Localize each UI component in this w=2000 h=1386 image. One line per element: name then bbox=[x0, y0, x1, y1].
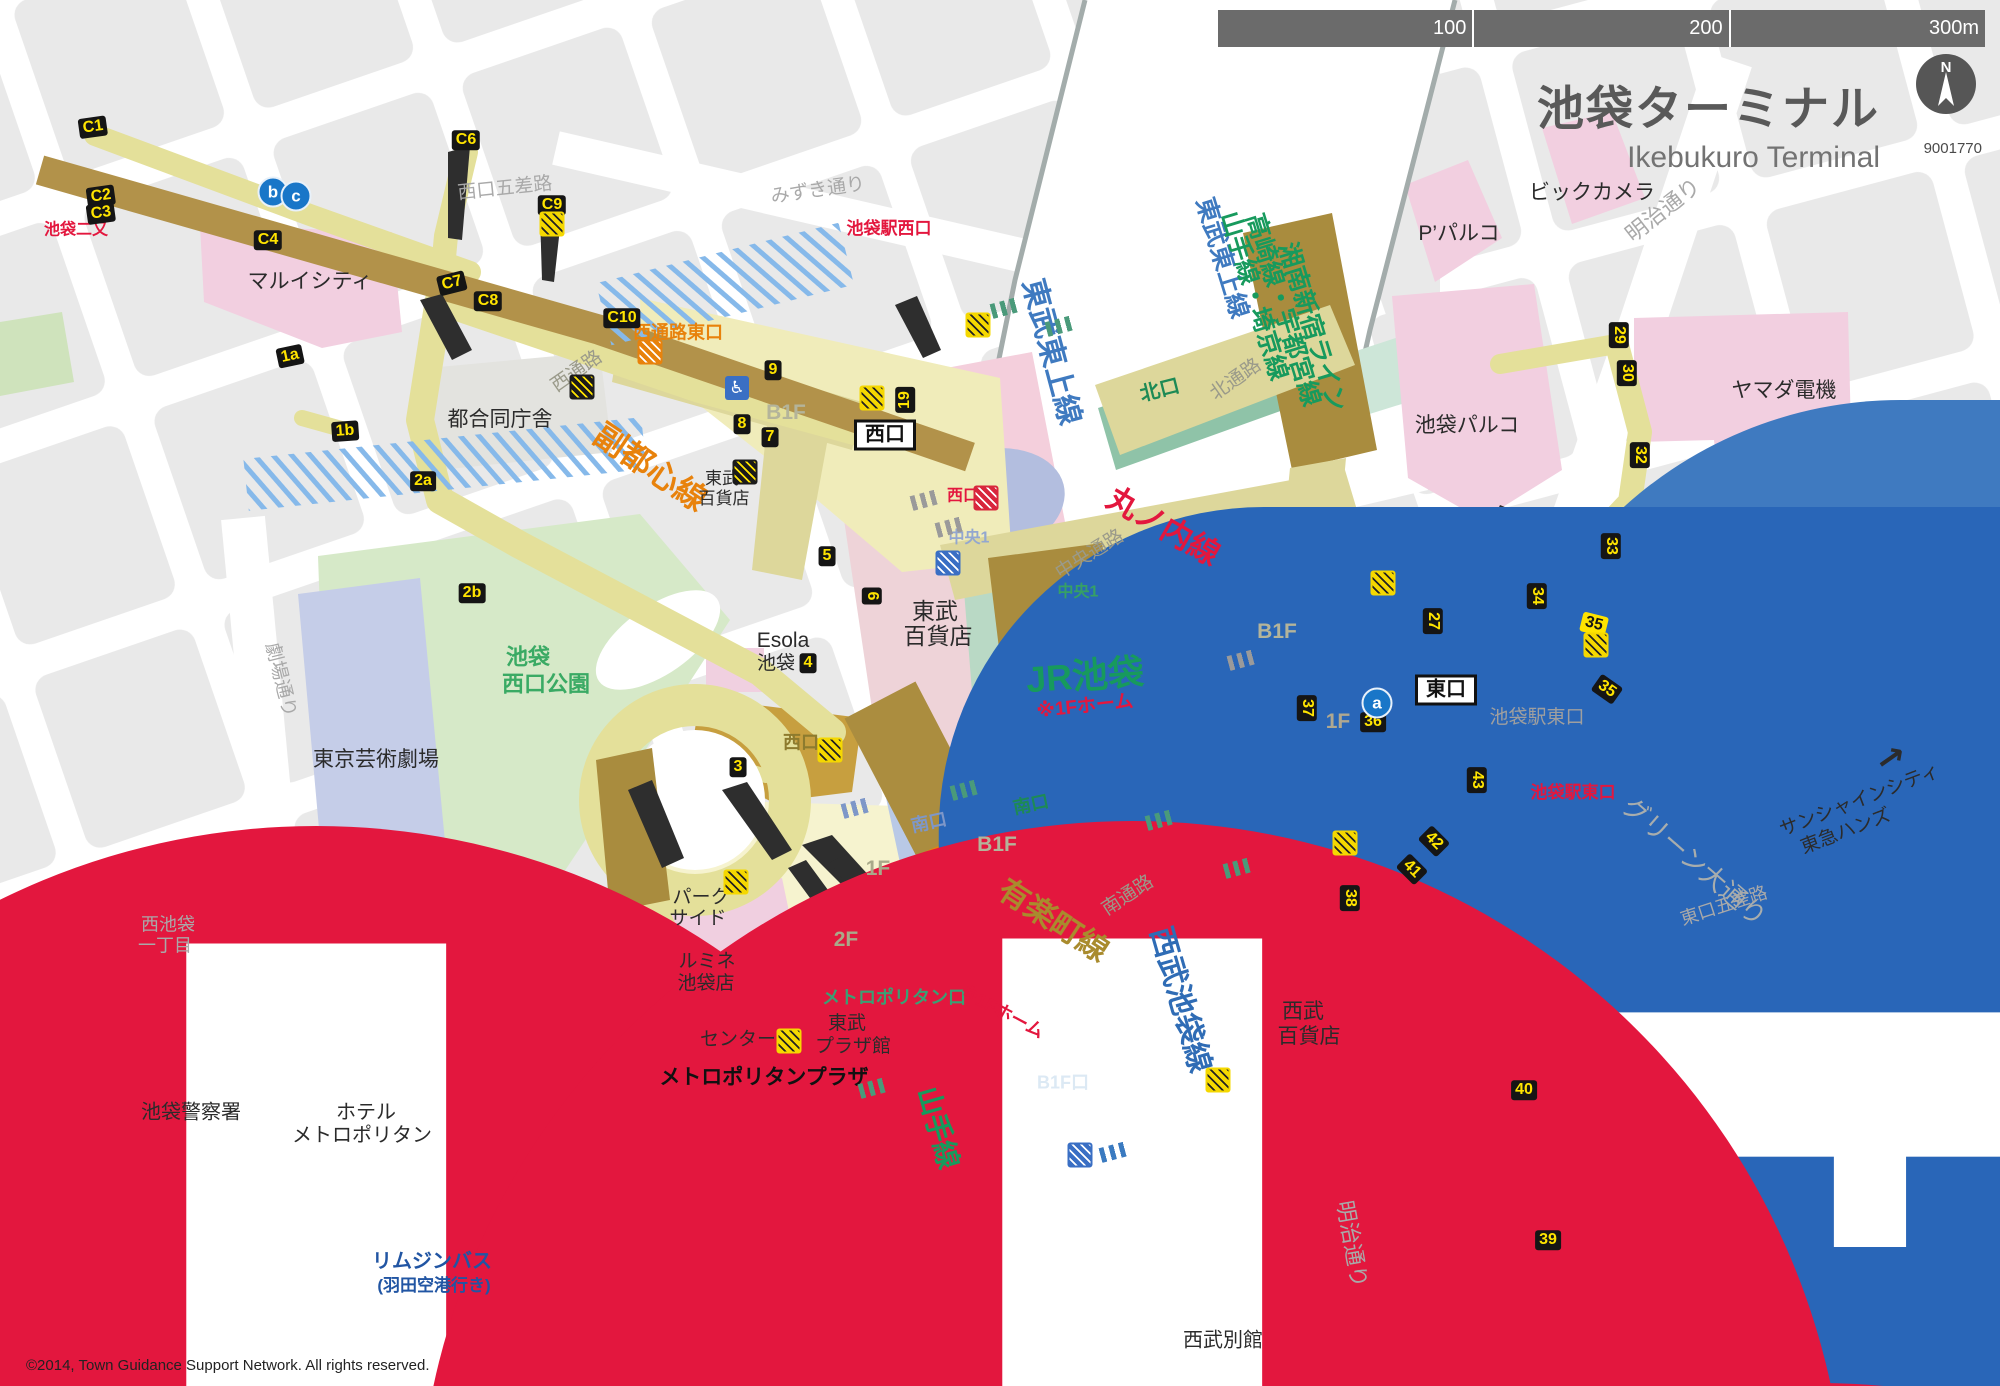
map-label: みずき通り bbox=[770, 175, 867, 208]
escalator-icon bbox=[818, 738, 843, 763]
map-label: 1F bbox=[1326, 711, 1351, 733]
map-label: 北通路 bbox=[1207, 355, 1265, 404]
crosswalk-marks bbox=[1099, 1141, 1130, 1163]
escalator-icon bbox=[1371, 571, 1396, 596]
bus-stop-badge-35: 35 bbox=[1591, 674, 1623, 705]
map-label: 池袋パルコ bbox=[1415, 415, 1520, 437]
escalator-icon bbox=[1584, 633, 1609, 658]
scale-segment-100: 100 bbox=[1218, 10, 1474, 47]
bus-stop-badge-C7: C7 bbox=[436, 270, 468, 296]
map-label: 北口 bbox=[1138, 376, 1182, 406]
map-label: 2F bbox=[834, 929, 859, 951]
bus-stop-badge-27: 27 bbox=[1423, 608, 1443, 634]
scale-bar: 100 200 300m bbox=[1218, 10, 1985, 47]
map-label: 西口公園 bbox=[502, 672, 590, 695]
map-label: 東武東上線 bbox=[1016, 275, 1085, 428]
map-label: ↗ bbox=[1873, 740, 1907, 780]
map-label: マルイシティ bbox=[248, 271, 373, 293]
bus-stop-badge-30: 30 bbox=[1617, 360, 1637, 386]
escalator-icon bbox=[777, 1029, 802, 1054]
map-label: B1F bbox=[1257, 621, 1297, 643]
escalator-icon bbox=[860, 386, 885, 411]
map-label: 池袋駅東口 bbox=[1489, 708, 1584, 728]
map-label: 南通路 bbox=[1099, 872, 1158, 920]
map-label: 池袋駅西口 bbox=[847, 220, 932, 238]
bus-stop-badge-33: 33 bbox=[1601, 533, 1621, 559]
bus-stop-badge-41: 41 bbox=[1396, 853, 1428, 885]
bus-stop-badge-9: 9 bbox=[765, 360, 782, 380]
scale-segment-200: 200 bbox=[1474, 10, 1730, 47]
map-label: 1F bbox=[866, 858, 891, 880]
map-label: 百貨店 bbox=[904, 624, 973, 648]
map-label: 劇場通り bbox=[261, 641, 299, 720]
map-label: 西武別館 bbox=[1183, 1331, 1263, 1352]
crosswalk-marks bbox=[1145, 809, 1176, 831]
bus-stop-badge-4: 4 bbox=[800, 653, 817, 673]
page-title: 池袋ターミナル bbox=[1537, 70, 1880, 139]
bus-stop-badge-7: 7 bbox=[762, 427, 779, 447]
bus-stop-badge-C3: C3 bbox=[86, 201, 117, 224]
scale-segment-300: 300m bbox=[1731, 10, 1985, 47]
map-label: 西武池袋線 bbox=[1144, 924, 1216, 1077]
map-label: 池袋 bbox=[757, 654, 795, 674]
bus-stop-badge-6: 6 bbox=[862, 588, 882, 605]
bus-stop-badge-37: 37 bbox=[1297, 695, 1317, 721]
bus-stop-badge-C6: C6 bbox=[452, 130, 480, 150]
map-label: ビックカメラ bbox=[1529, 182, 1655, 204]
bus-stop-badge-1a: 1a bbox=[275, 344, 304, 369]
bus-stop-badge-42: 42 bbox=[1418, 825, 1450, 857]
escalator-icon bbox=[966, 313, 991, 338]
crosswalk-marks bbox=[990, 297, 1021, 319]
map-label: 一丁目 bbox=[138, 937, 192, 956]
map-label: 西池袋 bbox=[141, 916, 195, 935]
compass-icon: N bbox=[1914, 52, 1978, 116]
bus-stop-badge-C4: C4 bbox=[254, 230, 282, 250]
map-label: 東武 bbox=[912, 599, 958, 623]
page-title-en: Ikebukuro Terminal bbox=[1537, 141, 1880, 175]
map-label: P’パルコ bbox=[1418, 223, 1499, 245]
map-label: 南口 bbox=[909, 810, 948, 836]
map-label: 有楽町線 bbox=[992, 874, 1114, 969]
crosswalk-marks bbox=[1227, 649, 1258, 671]
map-label: 西口 bbox=[783, 734, 819, 753]
bus-stop-badge-34: 34 bbox=[1527, 583, 1547, 609]
bus-stop-badge-C1: C1 bbox=[78, 115, 109, 138]
copyright-notice: ©2014, Town Guidance Support Network. Al… bbox=[26, 1357, 429, 1374]
map-label: ルミネ bbox=[678, 952, 735, 972]
map-label: B1F口 bbox=[1037, 1074, 1089, 1093]
map-label: ※1Fホーム bbox=[957, 982, 1047, 1042]
crosswalk-marks bbox=[910, 489, 941, 511]
map-label: 丸ノ内線 bbox=[1101, 482, 1225, 572]
map-label: プラザ館 bbox=[815, 1037, 891, 1057]
crosswalk-marks bbox=[1223, 857, 1254, 879]
map-label: B1F bbox=[977, 834, 1017, 856]
map-label: メトロポリタンプラザ bbox=[659, 1067, 868, 1089]
bus-stop-badge-8: 8 bbox=[734, 414, 751, 434]
map-label: センター bbox=[700, 1030, 776, 1050]
bus-stop-badge-C8: C8 bbox=[474, 291, 502, 311]
map-label: 都合同庁舎 bbox=[448, 409, 553, 431]
map-label: 東武 bbox=[828, 1014, 866, 1034]
map-label: 池袋店 bbox=[677, 974, 734, 994]
map-label: 副都心線 bbox=[588, 418, 713, 517]
escalator-icon bbox=[540, 212, 565, 237]
bus-stop-badge-2a: 2a bbox=[410, 471, 436, 491]
bus-stop-badge-3: 3 bbox=[730, 757, 747, 777]
map-label: メトロポリタン bbox=[292, 1126, 432, 1147]
map-label: 明治通り bbox=[1333, 1199, 1371, 1290]
ikebukuro-terminal-map: ビックカメラP’パルコ明治通り明治通りマルイシティ西口五差路みずき通り池袋二又池… bbox=[0, 0, 2000, 1386]
map-label: 池袋二又 bbox=[44, 223, 108, 240]
escalator-icon bbox=[724, 870, 749, 895]
map-label: 中央1 bbox=[1058, 585, 1099, 602]
bus-stop-badge-32: 32 bbox=[1630, 442, 1650, 468]
map-label: ヤマダ電機 bbox=[1732, 380, 1837, 402]
map-label: Esola bbox=[757, 630, 810, 652]
map-label: (羽田空港行き) bbox=[377, 1277, 490, 1295]
bus-stop-badge-C10: C10 bbox=[603, 308, 640, 328]
label-layer: ビックカメラP’パルコ明治通り明治通りマルイシティ西口五差路みずき通り池袋二又池… bbox=[0, 0, 2000, 1386]
bus-stop-badge-40: 40 bbox=[1511, 1080, 1537, 1100]
map-label: B1F bbox=[766, 402, 806, 424]
bus-stop-badge-38: 38 bbox=[1340, 885, 1360, 911]
bus-stop-badge-1b: 1b bbox=[331, 420, 359, 441]
map-label: 東京芸術劇場 bbox=[313, 749, 439, 771]
map-label: 西口 bbox=[854, 420, 916, 451]
bus-stop-badge-29: 29 bbox=[1609, 322, 1629, 348]
map-label: 百貨店 bbox=[699, 490, 750, 508]
escalator-icon bbox=[733, 460, 758, 485]
escalator-icon bbox=[936, 551, 961, 576]
map-label: ホテル bbox=[336, 1103, 396, 1124]
map-label: 南口 bbox=[1011, 792, 1050, 818]
map-label: リムジンバス bbox=[372, 1252, 492, 1273]
map-id: 9001770 bbox=[1924, 140, 1982, 157]
escalator-icon bbox=[570, 375, 595, 400]
escalator-icon bbox=[1206, 1068, 1231, 1093]
map-label: メトロポリタン口 bbox=[822, 989, 966, 1008]
map-label: 西武 bbox=[1282, 1001, 1324, 1023]
map-label: 池袋警察署 bbox=[141, 1103, 241, 1124]
map-label: 百貨店 bbox=[1278, 1026, 1341, 1048]
map-label: 中央通路 bbox=[1052, 526, 1127, 583]
wheelchair-access-icon: ♿ bbox=[725, 376, 749, 400]
bus-stop-badge-19: 19 bbox=[895, 387, 915, 413]
escalator-icon bbox=[638, 340, 663, 365]
map-label: 東口 bbox=[1415, 675, 1477, 706]
escalator-icon bbox=[974, 486, 999, 511]
escalator-icon bbox=[1333, 831, 1358, 856]
map-label: 池袋駅東口 bbox=[1531, 784, 1616, 802]
escalator-icon bbox=[1068, 1143, 1093, 1168]
bus-stop-badge-39: 39 bbox=[1535, 1230, 1561, 1250]
bus-stop-badge-5: 5 bbox=[819, 546, 836, 566]
map-label: パーク bbox=[672, 888, 729, 908]
map-label: 山手線 bbox=[912, 1084, 963, 1173]
map-label: 池袋 bbox=[506, 645, 550, 668]
bus-stop-badge-2b: 2b bbox=[459, 583, 486, 603]
crosswalk-marks bbox=[841, 797, 872, 819]
crosswalk-marks bbox=[950, 779, 981, 801]
bus-stop-letter-c: c bbox=[281, 181, 312, 212]
map-title-block: 池袋ターミナル Ikebukuro Terminal bbox=[1537, 70, 1880, 175]
map-label: サイド bbox=[669, 909, 726, 929]
bus-stop-badge-43: 43 bbox=[1467, 767, 1487, 793]
bus-stop-letter-a: a bbox=[1362, 688, 1393, 719]
